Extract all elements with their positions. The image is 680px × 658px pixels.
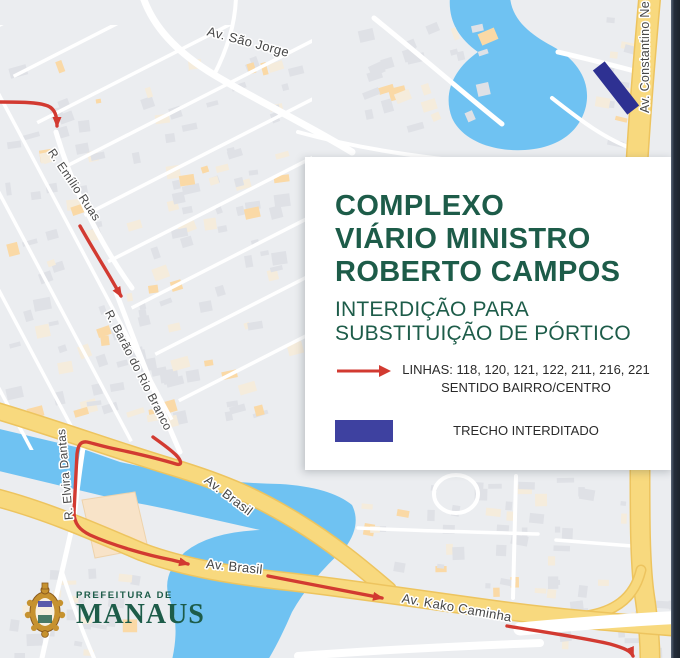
map-building [555,527,560,533]
legend-row-bus-lines: LINHAS: 118, 120, 121, 122, 211, 216, 22… [335,361,659,397]
map-building [172,180,181,190]
map-building [165,133,176,143]
map-building [126,293,133,302]
map-building [96,99,102,104]
map-building [578,487,585,496]
map-building [35,324,51,339]
legend-bus-lines-text: LINHAS: 118, 120, 121, 122, 211, 216, 22… [393,361,659,397]
map-building [57,361,73,375]
map-building [9,619,19,632]
map-building [148,285,159,294]
map-building [215,285,226,297]
map-building [180,236,194,248]
map-building [421,98,438,113]
closed-section-swatch [335,420,393,442]
map-building [620,501,626,506]
map-building [553,545,570,551]
map-building [548,556,555,565]
map-building [506,511,513,520]
map-building [5,386,24,401]
map-building [610,51,618,58]
map-building [182,123,198,132]
card-subtitle: INTERDIÇÃO PARA SUBSTITUIÇÃO DE PÓRTICO [335,298,659,346]
map-building [167,322,180,332]
map-building [145,87,153,99]
legend-closed-text: TRECHO INTERDITADO [393,422,659,440]
map-building [485,508,501,517]
map-building [14,653,25,658]
map-building [446,544,453,555]
map-building [615,116,628,123]
map-building [215,164,229,173]
subtitle-line-1: INTERDIÇÃO PARA [335,298,659,322]
street-label: Av. São Jorge [205,23,290,59]
legend-lines-direction: SENTIDO BAIRRO/CENTRO [393,379,659,397]
prefeitura-manaus-logo: PREFEITURA DE MANAUS [22,579,205,639]
map-building [437,564,444,569]
map-building [203,218,217,231]
map-building [170,356,190,372]
traffic-advisory-graphic: Av. São JorgeR. Emílio RuasR. Barão do R… [0,0,680,658]
legend: LINHAS: 118, 120, 121, 122, 211, 216, 22… [335,361,659,442]
map-building [452,547,464,560]
map-building [548,576,559,589]
map-building [425,22,440,35]
map-building [518,482,535,490]
map-building [96,354,109,368]
map-building [249,170,259,176]
map-building [150,246,160,259]
image-right-border [671,0,680,658]
map-building [288,65,304,76]
water-body [449,0,587,150]
map-building [236,206,245,217]
map-building [562,528,573,539]
map-building [358,28,375,43]
manaus-crest-icon [22,579,68,639]
map-building [238,381,257,396]
map-building [431,111,442,121]
map-building [598,580,609,586]
map-building [31,191,42,200]
map-building [206,100,219,108]
map-building [547,589,557,599]
map-building [621,513,627,523]
map-building [361,503,373,509]
map-building [271,251,288,266]
legend-lines-list: LINHAS: 118, 120, 121, 122, 211, 216, 22… [393,361,659,379]
map-building [365,109,374,120]
map-building [427,510,435,521]
map-building [535,588,547,594]
map-building [45,229,59,241]
map-building [274,193,291,208]
street [556,540,632,546]
logo-manaus-text: MANAUS [76,601,205,629]
map-building [186,369,201,382]
map-building [488,484,502,489]
map-building [496,545,507,557]
map-building [625,638,642,643]
advisory-card: COMPLEXO VIÁRIO MINISTRO ROBERTO CAMPOS … [305,157,673,470]
title-line-2: VIÁRIO MINISTRO [335,223,659,256]
route-arrow-icon [335,363,393,384]
map-building [88,569,96,579]
logo-text: PREFEITURA DE MANAUS [76,590,205,629]
legend-closed-label: TRECHO INTERDITADO [393,422,659,440]
title-line-1: COMPLEXO [335,190,659,223]
map-building [201,166,210,174]
map-building [505,501,512,510]
map-building [110,382,125,392]
map-building [9,341,21,348]
title-line-3: ROBERTO CAMPOS [335,256,659,289]
street [298,643,540,656]
map-building [606,17,615,23]
map-building [55,60,65,73]
map-building [244,255,253,268]
map-building [421,83,432,96]
subtitle-line-2: SUBSTITUIÇÃO DE PÓRTICO [335,322,659,346]
map-building [281,83,289,91]
map-building [275,151,290,160]
map-building [204,359,214,366]
map-building [529,513,544,524]
map-building [557,478,574,483]
map-building [73,407,89,418]
legend-row-closed-section: TRECHO INTERDITADO [335,418,659,442]
street-label: Av. Constantino Ne [638,1,652,113]
map-building [366,69,383,82]
map-building [140,96,155,110]
map-building [199,300,213,313]
map-building [396,509,409,518]
map-building [217,225,227,233]
map-building [5,182,12,195]
map-building [407,122,425,133]
map-building [7,140,21,149]
map-building [393,562,405,573]
map-building [535,494,547,507]
map-building [595,96,611,108]
map-building [126,219,142,231]
map-building [23,310,34,323]
map-building [362,87,380,100]
map-building [269,205,283,220]
map-building [74,641,83,647]
map-building [126,407,145,418]
map-building [493,588,500,597]
map-building [151,265,170,282]
map-building [159,297,172,306]
map-building [172,191,186,204]
map-building [182,206,193,215]
map-building [49,320,59,326]
map-building [485,583,490,588]
map-building [58,344,68,353]
card-title: COMPLEXO VIÁRIO MINISTRO ROBERTO CAMPOS [335,190,659,289]
map-building [247,321,263,331]
map-building [132,152,141,164]
map-building [6,242,20,257]
map-building [260,250,269,256]
map-building [578,585,588,598]
map-building [78,120,91,133]
